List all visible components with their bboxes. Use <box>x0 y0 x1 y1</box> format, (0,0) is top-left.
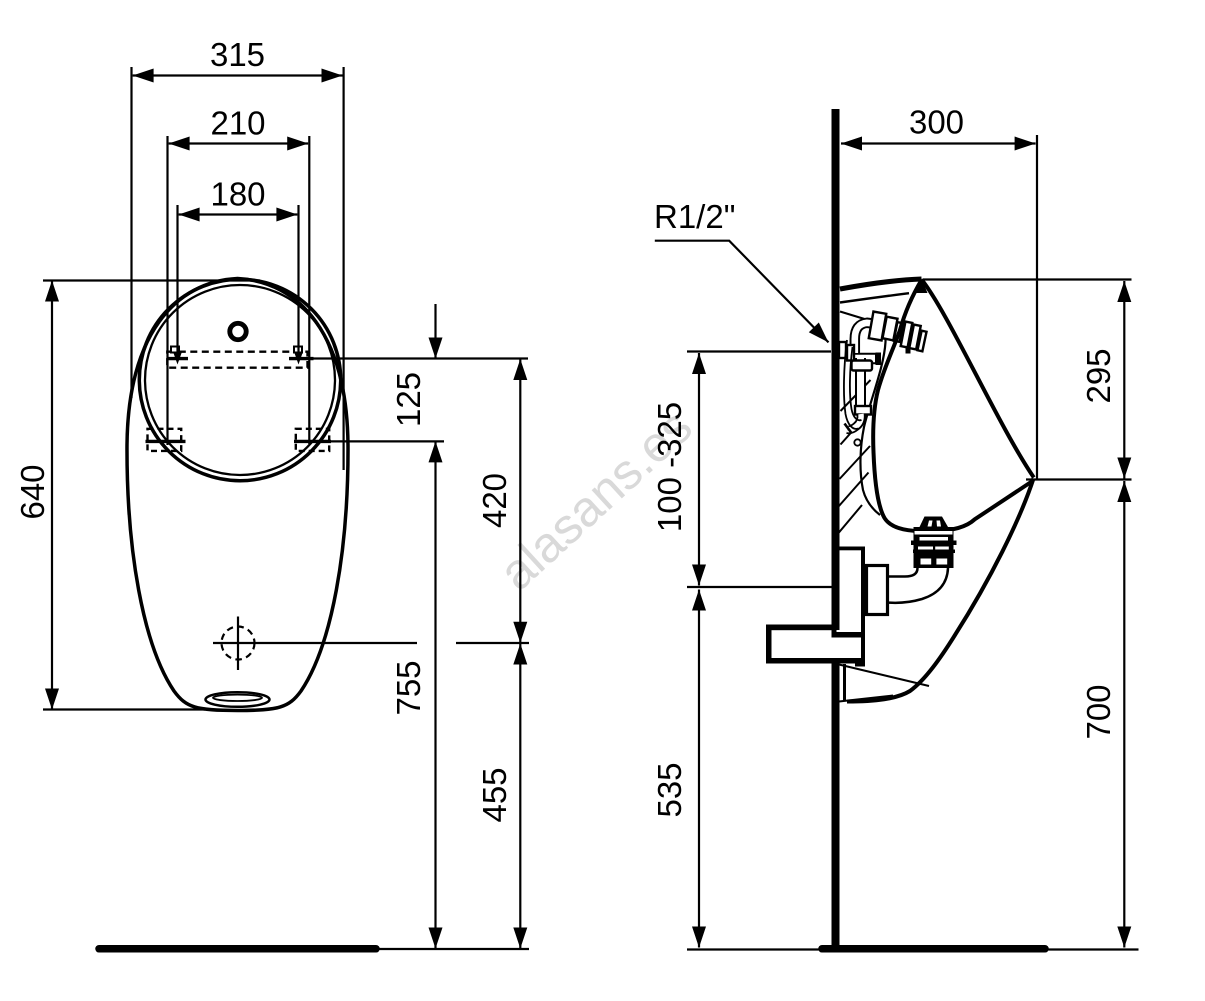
svg-text:315: 315 <box>210 36 265 73</box>
svg-text:R1/2": R1/2" <box>654 198 735 235</box>
svg-text:210: 210 <box>210 105 265 142</box>
svg-text:180: 180 <box>210 176 265 213</box>
svg-text:455: 455 <box>476 767 513 822</box>
svg-text:755: 755 <box>390 660 427 715</box>
svg-text:100 -325: 100 -325 <box>651 402 688 532</box>
svg-text:300: 300 <box>909 104 964 141</box>
svg-text:125: 125 <box>390 372 427 427</box>
svg-text:535: 535 <box>651 762 688 817</box>
svg-text:700: 700 <box>1080 684 1117 739</box>
svg-text:295: 295 <box>1080 348 1117 403</box>
svg-text:420: 420 <box>476 473 513 528</box>
svg-text:640: 640 <box>14 464 51 519</box>
